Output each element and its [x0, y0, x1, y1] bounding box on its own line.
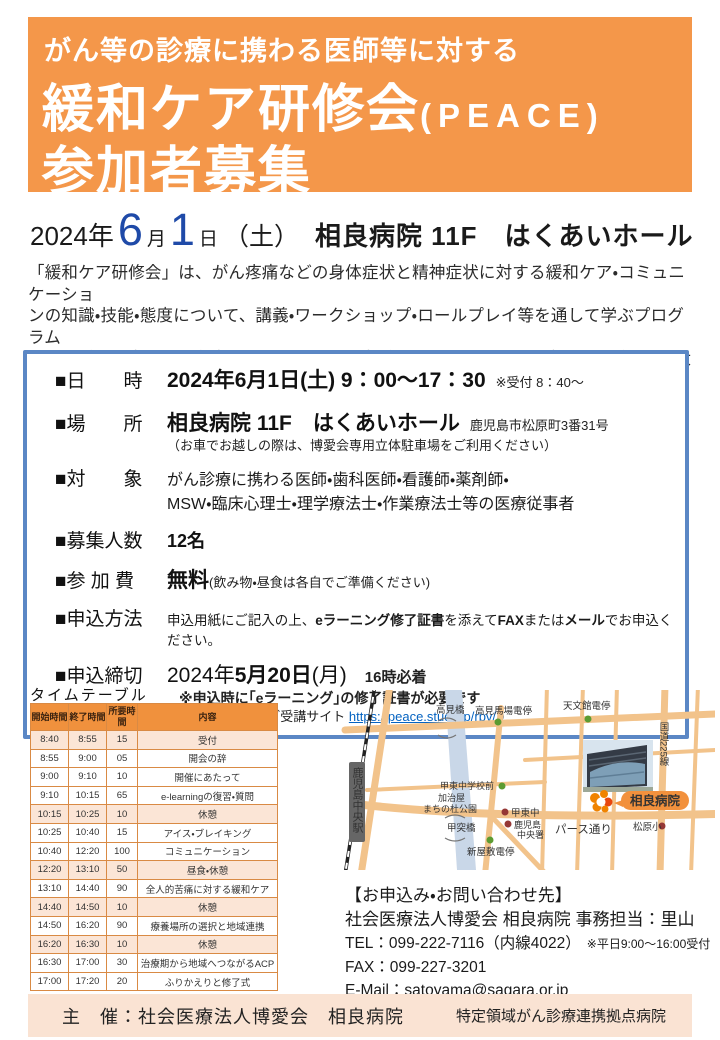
header-title-line3: 参加者募集 — [42, 129, 312, 204]
date-venue-line: 2024年 6 月 1 日 （土） 相良病院 11F はくあいホール — [30, 204, 694, 256]
route225-label: 国道225線 — [658, 722, 670, 767]
table-row: 17:0017:2020ふりかえりと修了式 — [31, 972, 278, 991]
contact-tel: TEL：099-222-7116（内線4022） — [345, 935, 581, 952]
pearth-street-label: パース通り — [555, 823, 612, 836]
table-row: 8:559:0005開会の辞 — [31, 749, 278, 768]
day-unit: 日 — [199, 224, 218, 251]
contact-block: 【お申込み・お問い合わせ先】 社会医療法人博愛会 相良病院 事務担当：里山 TE… — [345, 884, 715, 1002]
roads — [345, 690, 715, 870]
deadline-value: 2024年5月20日(月) — [167, 659, 347, 689]
place-label: ■場 所 — [55, 409, 167, 436]
detail-row-capacity: ■募集人数 12名 — [55, 526, 679, 553]
hospital-marker-icon — [590, 790, 613, 813]
apply-label: ■申込方法 — [55, 604, 167, 631]
takamibaba-stop-label: 高見馬場電停 — [475, 705, 533, 717]
month-unit: 月 — [147, 224, 166, 251]
event-details-box: ■日 時 2024年6月1日(土) 9：00～17：30 ※受付 8：40～ ■… — [23, 350, 689, 739]
detail-row-place: ■場 所 相良病院 11F はくあいホール 鹿児島市松原町3番31号 （お車でお… — [55, 407, 679, 455]
table-row: 10:4012:20100コミュニケーション — [31, 842, 278, 861]
organizer-text: 主 催：社会医療法人博愛会 相良病院 — [62, 1003, 404, 1029]
table-row: 10:2510:4015アイス・ブレイキング — [31, 823, 278, 842]
kajiya-park-label1: 加治屋 — [438, 792, 465, 803]
river — [445, 690, 476, 870]
contact-org: 社会医療法人博愛会 相良病院 事務担当：里山 — [345, 908, 715, 932]
table-row: 10:1510:2510休憩 — [31, 805, 278, 824]
contact-tel-line: TEL：099-222-7116（内線4022）※平日9:00～16:00受付 — [345, 932, 715, 956]
header-banner: がん等の診療に携わる医師等に対する 緩和ケア研修会(PEACE) 参加者募集 — [28, 17, 692, 192]
event-year: 2024年 — [30, 216, 114, 253]
datetime-label: ■日 時 — [55, 366, 167, 393]
capacity-label: ■募集人数 — [55, 526, 167, 553]
table-row: 8:408:5515受付 — [31, 731, 278, 750]
hospital-badge-label: 相良病院 — [630, 793, 681, 808]
event-weekday: （土） — [224, 217, 299, 253]
koto-school-front-label: 甲東中学校前 — [440, 780, 494, 791]
deadline-date: 5月20日 — [235, 664, 312, 687]
table-row: 14:5016:2090療養場所の選択と地域連携 — [31, 916, 278, 935]
table-row: 16:3017:0030治療期から地域へつながるACP — [31, 954, 278, 973]
shinyashiki-stop-label: 新屋敷電停 — [467, 846, 515, 858]
detail-row-datetime: ■日 時 2024年6月1日(土) 9：00～17：30 ※受付 8：40～ — [55, 364, 679, 394]
col-start: 開始時間 — [31, 704, 69, 731]
kajiya-park-label2: まちの杜公園 — [423, 803, 477, 814]
access-map: 鹿児島中央駅 高見橋 高見馬場電停 天文館電停 — [295, 690, 715, 870]
fee-label: ■参 加 費 — [55, 566, 167, 593]
place-address: 鹿児島市松原町3番31号 — [470, 415, 609, 434]
table-row: 9:1010:1565e-learningの復習・質問 — [31, 786, 278, 805]
col-content: 内容 — [138, 704, 278, 731]
apply-mid2: または — [524, 613, 565, 628]
designation-text: 特定領域がん診療連携拠点病院 — [456, 1005, 666, 1026]
hospital-photo — [583, 740, 653, 792]
contact-heading: 【お申込み・お問い合わせ先】 — [345, 884, 715, 908]
timetable-title: タイムテーブル — [30, 684, 148, 705]
table-row: 9:009:1010開催にあたって — [31, 768, 278, 787]
hospital-badge: 相良病院 — [614, 791, 689, 810]
timetable-header-row: 開始時間 終了時間 所要時間 内容 — [31, 704, 278, 731]
matsubara-elem-label: 松原小 — [633, 821, 662, 833]
target-line2: MSW・臨床心理士・理学療法士・作業療法士等の医療従事者 — [167, 493, 679, 517]
detail-row-target: ■対 象 がん診療に携わる医師・歯科医師・看護師・薬剤師・ MSW・臨床心理士・… — [55, 464, 679, 517]
detail-row-fee: ■参 加 費 無料 (飲み物・昼食は各自でご準備ください) — [55, 564, 679, 594]
deadline-year: 2024年 — [167, 664, 235, 687]
target-label: ■対 象 — [55, 464, 167, 491]
apply-text: 申込用紙にご記入の上、eラーニング修了証書を添えてFAXまたはメールでお申込くだ… — [167, 609, 679, 649]
apply-mail: メール — [564, 613, 605, 628]
place-parking-note: （お車でお越しの際は、博愛会専用立体駐車場をご利用ください） — [167, 437, 679, 455]
apply-mid1: を添えて — [444, 613, 497, 628]
police-label2: 中央署 — [517, 829, 544, 840]
deadline-time-note: 16時必着 — [365, 666, 427, 687]
apply-certificate: eラーニング修了証書 — [315, 613, 444, 628]
police-label1: 鹿児島 — [514, 819, 541, 830]
place-value: 相良病院 11F はくあいホール — [167, 407, 460, 437]
event-month-number: 6 — [114, 204, 147, 256]
header-subtitle: がん等の診療に携わる医師等に対する — [44, 29, 520, 68]
footer-bar: 主 催：社会医療法人博愛会 相良病院 特定領域がん診療連携拠点病院 — [28, 994, 692, 1037]
target-line1: がん診療に携わる医師・歯科医師・看護師・薬剤師・ — [167, 469, 509, 493]
flyer-page: がん等の診療に携わる医師等に対する 緩和ケア研修会(PEACE) 参加者募集 2… — [0, 0, 720, 1040]
kagoshima-chuo-station-label: 鹿児島中央駅 — [351, 766, 364, 834]
kotsuki-bridge-label: 甲突橋 — [447, 822, 476, 834]
deadline-dow: (月) — [312, 664, 347, 687]
table-row: 16:2016:3010休憩 — [31, 935, 278, 954]
col-end: 終了時間 — [69, 704, 107, 731]
datetime-note: ※受付 8：40～ — [496, 372, 584, 391]
contact-tel-note: ※平日9:00～16:00受付 — [587, 937, 710, 951]
apply-fax: FAX — [498, 613, 524, 628]
datetime-value: 2024年6月1日(土) 9：00～17：30 — [167, 364, 486, 394]
fee-value: 無料 — [167, 564, 209, 594]
col-duration: 所要時間 — [107, 704, 138, 731]
header-title-paren: (PEACE) — [420, 97, 605, 134]
intro-line: 「緩和ケア研修会」は、がん疼痛などの身体症状と精神症状に対する緩和ケア・コミュニ… — [28, 263, 696, 306]
table-row: 13:1014:4090全人的苦痛に対する緩和ケア — [31, 879, 278, 898]
koto-junior-label: 甲東中 — [511, 807, 540, 819]
event-venue: 相良病院 11F はくあいホール — [315, 216, 694, 253]
table-row: 14:4014:5010休憩 — [31, 898, 278, 917]
capacity-value: 12名 — [167, 527, 205, 553]
timetable: 開始時間 終了時間 所要時間 内容 8:408:5515受付 8:559:000… — [30, 703, 278, 991]
contact-fax: FAX：099-227-3201 — [345, 956, 715, 979]
intro-line: ンの知識・技能・態度について、講義・ワークショップ・ロールプレイ等を通して学ぶプ… — [28, 306, 696, 349]
takami-bridge-label: 高見橋 — [436, 704, 465, 716]
fee-note: (飲み物・昼食は各自でご準備ください) — [209, 572, 430, 591]
event-day-number: 1 — [166, 204, 199, 256]
detail-row-apply: ■申込方法 申込用紙にご記入の上、eラーニング修了証書を添えてFAXまたはメール… — [55, 604, 679, 649]
tenmonkan-stop-label: 天文館電停 — [563, 700, 611, 712]
apply-pre: 申込用紙にご記入の上、 — [167, 613, 315, 628]
table-row: 12:2013:1050昼食・休憩 — [31, 861, 278, 880]
